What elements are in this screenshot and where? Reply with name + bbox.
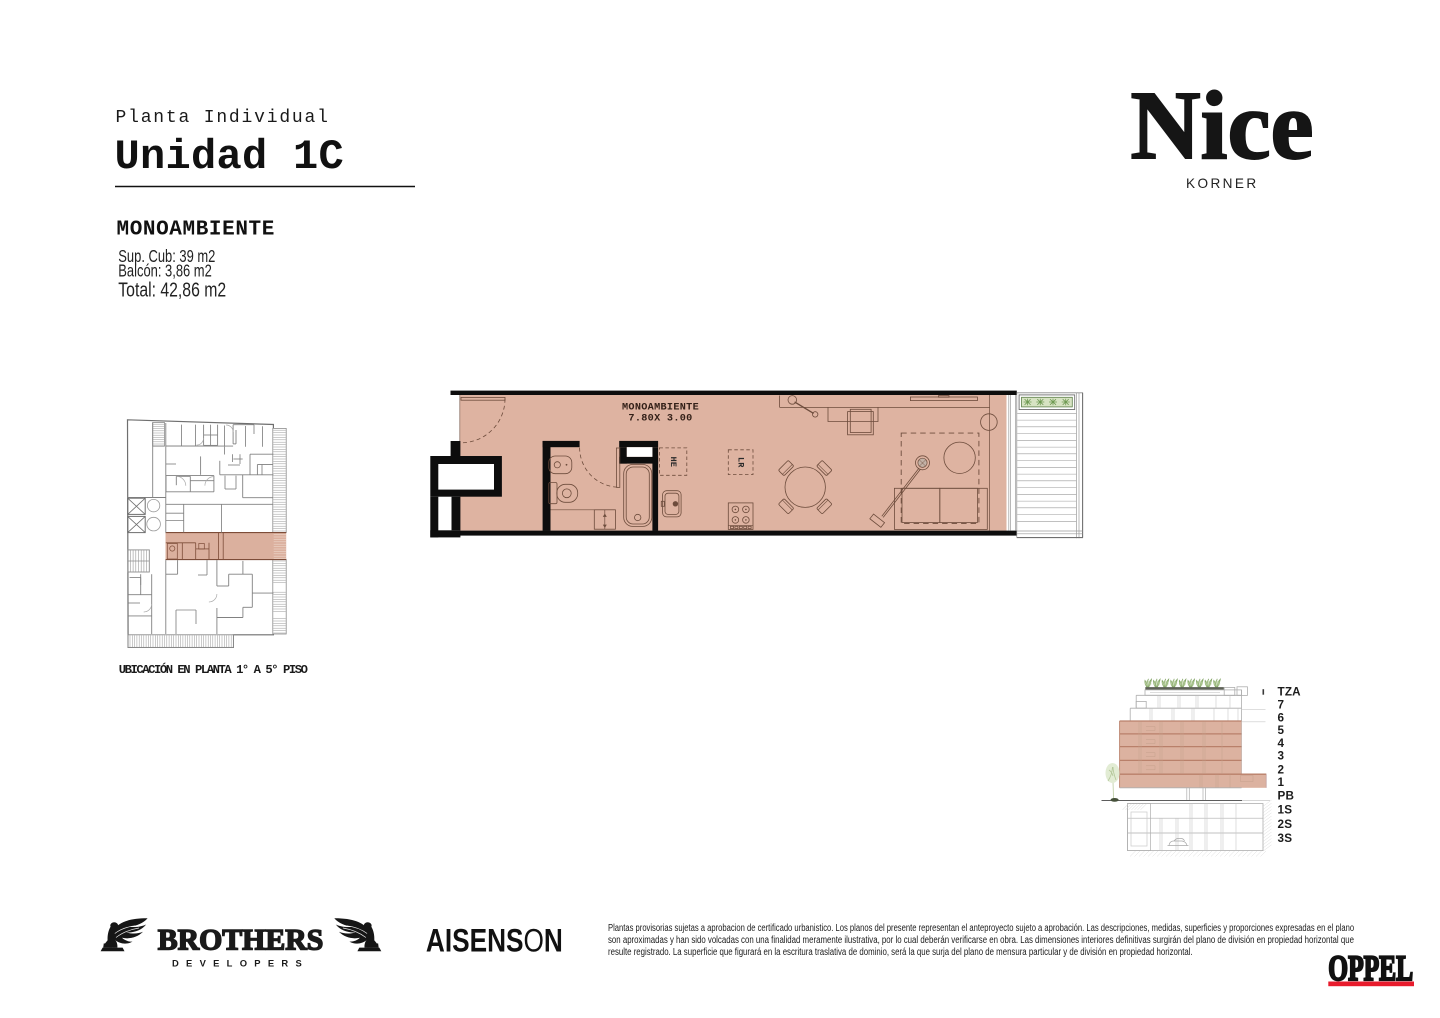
svg-text:DEVELOPERS: DEVELOPERS xyxy=(172,957,309,968)
svg-text:2: 2 xyxy=(1278,763,1285,776)
svg-text:UBICACIÓN EN PLANTA 1° A 5° PI: UBICACIÓN EN PLANTA 1° A 5° PISO xyxy=(119,662,308,677)
svg-text:PB: PB xyxy=(1278,790,1295,803)
svg-text:KORNER: KORNER xyxy=(1186,176,1259,191)
svg-text:4: 4 xyxy=(1278,737,1285,750)
svg-text:6: 6 xyxy=(1278,711,1285,724)
svg-text:3: 3 xyxy=(1278,750,1285,763)
svg-text:7.80X 3.00: 7.80X 3.00 xyxy=(628,414,692,425)
svg-text:5: 5 xyxy=(1278,724,1285,737)
svg-text:3S: 3S xyxy=(1278,832,1293,845)
svg-text:1: 1 xyxy=(1278,776,1285,789)
svg-text:7: 7 xyxy=(1278,699,1285,712)
svg-text:AISENSON: AISENSON xyxy=(426,923,563,959)
svg-text:TZA: TZA xyxy=(1278,686,1302,699)
svg-text:LR: LR xyxy=(736,457,746,468)
svg-text:MONOAMBIENTE: MONOAMBIENTE xyxy=(117,219,275,242)
svg-text:Nice: Nice xyxy=(1131,72,1314,179)
svg-text:2S: 2S xyxy=(1278,818,1293,831)
svg-text:Total: 42,86 m2: Total: 42,86 m2 xyxy=(118,278,226,302)
svg-text:Unidad 1C: Unidad 1C xyxy=(115,133,345,181)
svg-text:Planta Individual: Planta Individual xyxy=(116,108,330,128)
svg-text:BROTHERS: BROTHERS xyxy=(158,923,324,956)
svg-text:MONOAMBIENTE: MONOAMBIENTE xyxy=(622,403,699,414)
svg-text:HE: HE xyxy=(668,457,678,467)
svg-text:1S: 1S xyxy=(1278,804,1293,817)
